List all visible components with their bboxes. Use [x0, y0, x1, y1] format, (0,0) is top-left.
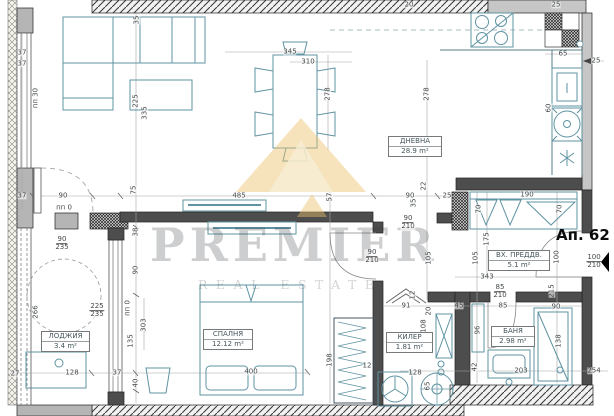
dimension-label: 400 [244, 368, 257, 375]
room-label-living: ДНЕВНА 28.9 m² [388, 136, 442, 157]
dimension-label: 190 [520, 191, 533, 198]
room-name: СПАЛНЯ [204, 330, 252, 340]
dimension-label: 22 [420, 182, 427, 191]
dimension-label: 100 [553, 250, 560, 263]
dimension-label: 12 [409, 291, 416, 300]
dimension-label: 12 [363, 362, 372, 369]
dimension-label: 37 [18, 49, 27, 56]
dimension-label: 485 [232, 192, 245, 199]
dimension-label: 70 [475, 205, 482, 214]
dimension-label: 278 [423, 87, 430, 100]
room-name: БАНЯ [492, 327, 534, 337]
dimension-label: 27 [11, 370, 20, 377]
dimension-label: пп 30 [32, 88, 39, 108]
room-area: 1.81 m² [387, 343, 432, 352]
dimension-label: 85 [499, 302, 508, 309]
dimension-label: 20 [425, 307, 432, 316]
dimension-layer: 353737пп 3022533575345310278278202565256… [0, 0, 614, 416]
dimension-label: 225235 [89, 303, 104, 319]
dimension-label: 20 [405, 1, 414, 8]
dimension-label: 128 [65, 369, 78, 376]
room-label-loggia: ЛОДЖИЯ 3.4 m² [41, 331, 90, 352]
dimension-label: 35 [410, 199, 417, 208]
dimension-label: 278 [324, 87, 331, 100]
room-label-bathroom: БАНЯ 2.98 m² [491, 326, 535, 347]
dimension-label: 100210 [586, 254, 601, 270]
room-name: КИЛЕР [387, 333, 432, 343]
dimension-label: 45 [455, 302, 464, 309]
dimension-label: 90 [132, 266, 139, 275]
dimension-label: 42 [471, 363, 478, 372]
room-area: 12.12 m² [204, 340, 252, 349]
dimension-label: 60 [545, 104, 552, 113]
room-label-bedroom: СПАЛНЯ 12.12 m² [203, 329, 253, 350]
room-label-entry: ВХ. ПРЕДДВ. 5.1 m² [488, 250, 550, 271]
room-label-closet: КИЛЕР 1.81 m² [386, 332, 433, 353]
dimension-label: 96 [474, 326, 481, 335]
dimension-label: 37 [18, 60, 27, 67]
dimension-label: 335 [141, 106, 148, 119]
dimension-label: 91 [402, 302, 411, 309]
dimension-label: 40 [132, 379, 139, 388]
dimension-label: 38 [132, 228, 139, 237]
room-area: 28.9 m² [389, 147, 441, 156]
room-name: ЛОДЖИЯ [42, 332, 89, 342]
dimension-label: 105 [425, 251, 432, 264]
dimension-label: 303 [140, 318, 147, 331]
dimension-label: 90210 [364, 249, 379, 265]
dimension-label: 254 [587, 367, 600, 374]
dimension-label: пп 0 [124, 300, 131, 316]
dimension-label: 90235 [54, 236, 69, 252]
dimension-label: 138 [555, 334, 562, 347]
dimension-label: 37 [113, 369, 122, 376]
room-area: 5.1 m² [489, 261, 549, 270]
dimension-label: 225 [132, 94, 139, 107]
dimension-label: 203 [514, 367, 527, 374]
dimension-label: 105 [472, 251, 479, 264]
dimension-label: 65 [424, 382, 431, 391]
dimension-label: 343 [480, 273, 493, 280]
room-area: 3.4 m² [42, 342, 89, 351]
dimension-label: 57 [326, 193, 333, 202]
room-name: ВХ. ПРЕДДВ. [489, 251, 549, 261]
dimension-label: 310 [301, 58, 314, 65]
dimension-label: 90 [59, 192, 68, 199]
dimension-label: 35 [133, 16, 140, 25]
dimension-label: 25 [552, 1, 561, 8]
dimension-label: 215 [548, 284, 555, 297]
dimension-label: 128 [408, 369, 421, 376]
floor-plan: PREMIER REAL ESTATE 353737пп 30225335753… [0, 0, 614, 416]
dimension-label: 25 [443, 192, 452, 199]
dimension-label: 108 [420, 319, 427, 332]
dimension-label: 266 [32, 305, 39, 318]
apartment-number: Ап. 62 [556, 226, 610, 244]
dimension-label: 37 [18, 192, 27, 199]
dimension-label: 65 [559, 50, 568, 57]
dimension-label: 85210 [492, 284, 507, 300]
room-name: ДНЕВНА [389, 137, 441, 147]
dimension-label: 198 [326, 353, 333, 366]
dimension-label: 90 [552, 303, 561, 310]
room-area: 2.98 m² [492, 337, 534, 346]
dimension-label: 70 [556, 205, 563, 214]
dimension-label: 175 [483, 232, 490, 245]
dimension-label: 90210 [400, 215, 415, 231]
dimension-label: 345 [283, 48, 296, 55]
dimension-label: 135 [127, 334, 134, 347]
dimension-label: 75 [130, 186, 137, 195]
dimension-label: 25 [592, 57, 601, 64]
dimension-label: пп 0 [56, 204, 72, 211]
